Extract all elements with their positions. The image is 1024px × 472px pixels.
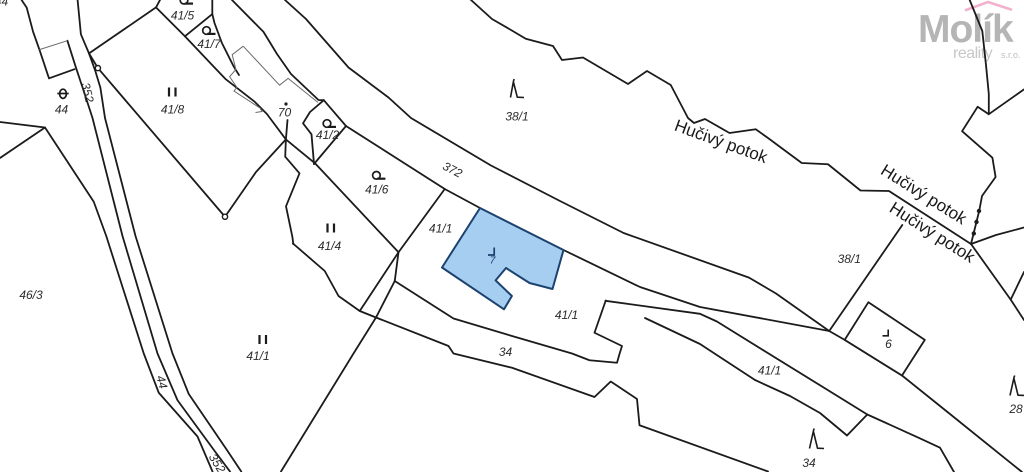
svg-text:38/1: 38/1	[505, 110, 528, 124]
svg-text:46/3: 46/3	[19, 288, 43, 302]
svg-text:44: 44	[0, 0, 8, 9]
svg-text:41/4: 41/4	[318, 239, 342, 253]
svg-text:41/7: 41/7	[197, 37, 222, 51]
svg-text:41/6: 41/6	[365, 183, 389, 197]
svg-text:34: 34	[802, 456, 816, 470]
svg-text:38/1: 38/1	[838, 252, 861, 266]
svg-text:41/2: 41/2	[316, 128, 340, 142]
svg-text:s.r.o.: s.r.o.	[1001, 50, 1021, 60]
svg-text:41/1: 41/1	[758, 364, 781, 378]
svg-text:41/8: 41/8	[161, 103, 185, 117]
svg-text:70: 70	[278, 106, 292, 120]
svg-text:34: 34	[499, 345, 513, 359]
svg-text:41/1: 41/1	[555, 308, 578, 322]
svg-text:44: 44	[55, 103, 69, 117]
svg-text:41/1: 41/1	[246, 349, 269, 363]
svg-text:28: 28	[1008, 402, 1023, 416]
svg-text:41/1: 41/1	[429, 222, 452, 236]
svg-text:6: 6	[885, 337, 892, 351]
svg-text:41/5: 41/5	[171, 9, 195, 23]
svg-text:reality: reality	[953, 45, 993, 62]
